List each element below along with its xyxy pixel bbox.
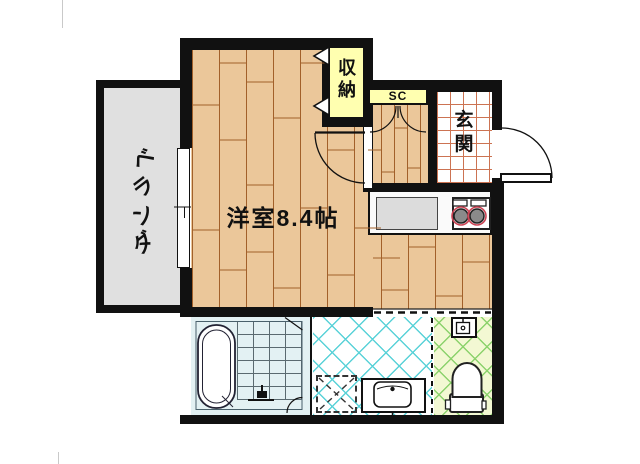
- wall-bottom: [180, 415, 504, 424]
- vanity-cabinet: [361, 378, 426, 413]
- scan-artifact: [58, 452, 59, 464]
- wall-kitchen-top: [363, 183, 502, 192]
- shoe-closet-label: SC: [368, 89, 428, 103]
- wall-hall-entrance-divider: [428, 90, 437, 183]
- main-room-label: 洋室8.4帖: [198, 199, 368, 233]
- washing-machine-pan-icon: [316, 375, 357, 413]
- shower-tile-floor: [237, 322, 302, 400]
- wall-bath-washroom-divider: [310, 317, 312, 415]
- wall-bathroom-top: [180, 307, 373, 317]
- kitchen-counter-icon: [376, 197, 438, 230]
- window-icon: [177, 148, 190, 268]
- room-door-opening: [363, 127, 373, 188]
- wall-right-main: [492, 178, 504, 424]
- hallway-floor: [368, 105, 428, 183]
- entrance-label: 玄関: [452, 109, 476, 157]
- corner-sink-box: [451, 317, 477, 338]
- stove-icon: [452, 197, 491, 230]
- entrance-door-leaf: [500, 173, 552, 183]
- entrance-door-icon: [502, 128, 552, 178]
- balcony-label: ベランダ: [125, 146, 163, 258]
- kitchen-unit: [368, 192, 492, 235]
- closet-label: 収納: [336, 57, 358, 101]
- scan-artifact: [62, 0, 63, 28]
- wall-right-upper: [492, 80, 502, 130]
- floorplan-canvas: 洋室8.4帖 ベランダ 収納 SC 玄関: [0, 0, 640, 464]
- wall-left-upper: [180, 50, 192, 148]
